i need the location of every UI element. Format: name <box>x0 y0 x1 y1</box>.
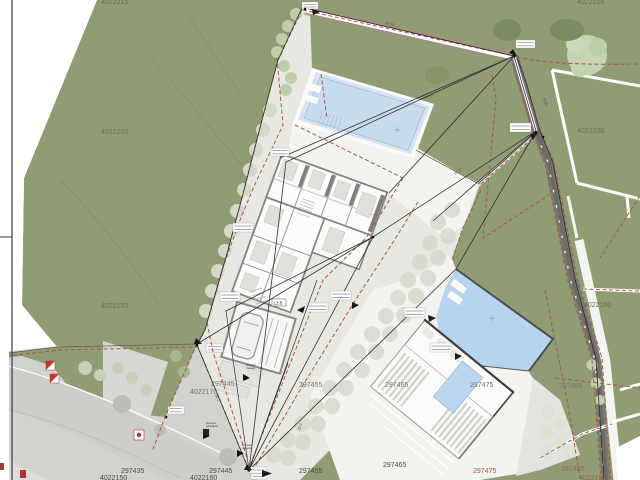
svg-text:297465: 297465 <box>385 382 408 389</box>
svg-text:4022215: 4022215 <box>577 0 604 6</box>
svg-text:297435: 297435 <box>121 468 144 475</box>
svg-text:rodado: rodado <box>242 446 252 450</box>
svg-text:4022150: 4022150 <box>100 475 127 480</box>
svg-text:297485: 297485 <box>559 383 582 390</box>
svg-text:297465: 297465 <box>383 462 406 469</box>
svg-text:4022160: 4022160 <box>190 475 217 480</box>
svg-text:4022150: 4022150 <box>101 303 128 310</box>
svg-text:297445: 297445 <box>209 468 232 475</box>
svg-text:4022200: 4022200 <box>577 128 604 135</box>
svg-text:297445: 297445 <box>211 381 234 388</box>
svg-text:L3.5: L3.5 <box>274 301 283 306</box>
svg-text:4022180: 4022180 <box>584 302 611 309</box>
svg-text:4022170: 4022170 <box>190 389 217 396</box>
svg-text:297485: 297485 <box>561 466 584 473</box>
svg-text:297455: 297455 <box>299 468 322 475</box>
svg-text:rodado: rodado <box>246 366 256 370</box>
svg-text:4022160: 4022160 <box>579 475 606 480</box>
svg-text:4022200: 4022200 <box>101 129 128 136</box>
svg-text:297455: 297455 <box>299 382 322 389</box>
svg-text:peatonal: peatonal <box>206 424 218 428</box>
svg-text:297475: 297475 <box>473 468 496 475</box>
svg-text:297475: 297475 <box>470 382 493 389</box>
svg-text:4022215: 4022215 <box>101 0 128 6</box>
